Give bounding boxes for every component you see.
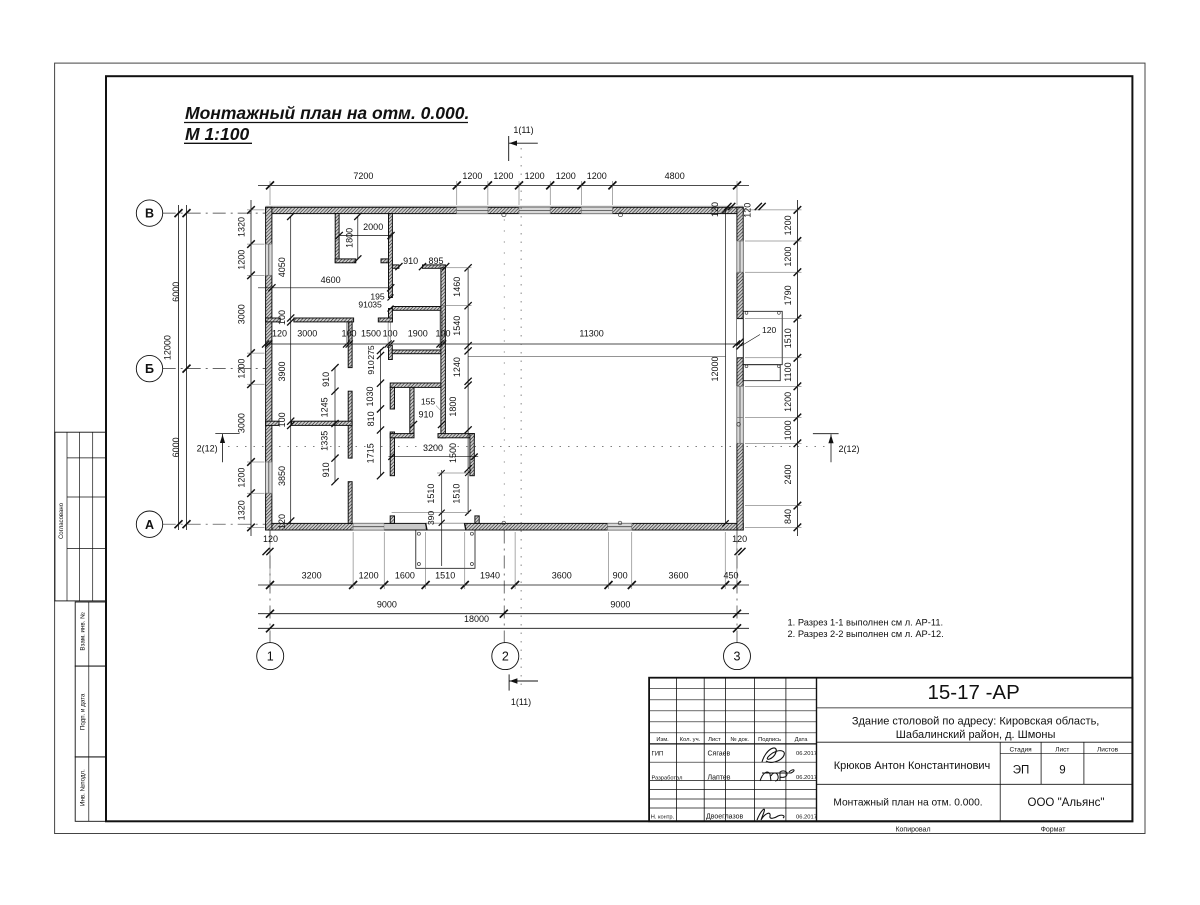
svg-text:12000: 12000: [163, 335, 173, 360]
svg-text:1540: 1540: [452, 316, 462, 336]
svg-text:3200: 3200: [302, 571, 322, 581]
svg-text:1460: 1460: [452, 277, 462, 297]
svg-text:1510: 1510: [435, 571, 455, 581]
svg-text:100: 100: [435, 329, 450, 339]
svg-text:810: 810: [366, 411, 376, 426]
svg-text:3: 3: [734, 650, 741, 664]
svg-text:1100: 1100: [783, 362, 793, 381]
svg-text:100: 100: [277, 310, 287, 325]
svg-text:910: 910: [403, 256, 418, 266]
svg-text:Инв. №подл.: Инв. №подл.: [80, 769, 87, 806]
svg-text:910: 910: [358, 300, 373, 310]
svg-text:2. Разрез 2-2 выполнен см л. А: 2. Разрез 2-2 выполнен см л. АР-12.: [788, 629, 944, 639]
svg-text:1320: 1320: [237, 500, 247, 520]
svg-text:Крюков Антон Константинович: Крюков Антон Константинович: [834, 760, 991, 772]
svg-text:1200: 1200: [556, 171, 576, 181]
svg-text:А: А: [145, 518, 154, 532]
svg-text:11300: 11300: [579, 329, 603, 339]
svg-text:3600: 3600: [552, 571, 572, 581]
svg-text:1200: 1200: [237, 250, 247, 270]
svg-text:3850: 3850: [277, 466, 287, 486]
svg-text:ООО "Альянс": ООО "Альянс": [1028, 797, 1105, 809]
svg-text:1320: 1320: [237, 217, 247, 237]
svg-text:1800: 1800: [345, 228, 355, 248]
svg-text:2(12): 2(12): [197, 443, 218, 453]
svg-text:1200: 1200: [359, 571, 379, 581]
svg-text:1200: 1200: [783, 392, 793, 412]
svg-text:910: 910: [366, 360, 376, 375]
svg-text:15-17 -АР: 15-17 -АР: [927, 681, 1019, 704]
svg-text:№ док.: № док.: [730, 737, 749, 743]
svg-text:100: 100: [383, 329, 398, 339]
svg-text:1200: 1200: [237, 468, 247, 488]
svg-text:1. Разрез 1-1 выполнен см л. А: 1. Разрез 1-1 выполнен см л. АР-11.: [788, 617, 944, 627]
svg-text:4050: 4050: [277, 257, 287, 277]
svg-text:Взам. инв. №: Взам. инв. №: [80, 612, 87, 651]
svg-text:12000: 12000: [710, 356, 720, 381]
svg-text:840: 840: [783, 509, 793, 524]
svg-text:9: 9: [1059, 765, 1065, 777]
svg-text:1940: 1940: [480, 571, 500, 581]
svg-text:Шабалинский район, д. Шмоны: Шабалинский район, д. Шмоны: [896, 729, 1056, 741]
svg-text:1: 1: [267, 650, 274, 664]
svg-text:120: 120: [272, 329, 287, 339]
svg-text:Разработал: Разработал: [652, 776, 683, 782]
svg-text:Лист: Лист: [1055, 747, 1069, 754]
svg-text:06.2017: 06.2017: [796, 751, 817, 757]
svg-text:Н. контр.: Н. контр.: [651, 815, 675, 821]
svg-text:2(12): 2(12): [839, 444, 860, 454]
svg-text:Сягаев: Сягаев: [708, 751, 731, 758]
svg-text:3200: 3200: [423, 443, 443, 453]
svg-text:6000: 6000: [171, 437, 181, 457]
svg-text:Копировал: Копировал: [895, 827, 930, 834]
svg-text:6000: 6000: [171, 282, 181, 302]
svg-text:1510: 1510: [783, 328, 793, 348]
svg-text:ГИП: ГИП: [652, 752, 664, 758]
svg-text:4600: 4600: [321, 275, 341, 285]
svg-text:1200: 1200: [237, 359, 247, 379]
svg-text:1030: 1030: [365, 386, 375, 406]
svg-text:Лаптев: Лаптев: [708, 775, 731, 782]
svg-text:155: 155: [421, 397, 436, 407]
svg-text:Б: Б: [145, 362, 154, 376]
svg-text:06.2017: 06.2017: [796, 815, 817, 821]
svg-text:3000: 3000: [237, 304, 247, 324]
svg-text:Здание столовой по адресу: Кир: Здание столовой по адресу: Кировская обл…: [852, 715, 1100, 727]
svg-text:1(11): 1(11): [511, 697, 531, 707]
svg-text:2: 2: [502, 650, 509, 664]
svg-text:910: 910: [321, 462, 331, 477]
svg-text:В: В: [145, 207, 154, 221]
svg-text:3000: 3000: [237, 413, 247, 433]
svg-text:06.2017: 06.2017: [796, 775, 817, 781]
svg-text:450: 450: [723, 571, 738, 581]
svg-text:М 1:100: М 1:100: [185, 124, 249, 144]
svg-text:Двоеглазов: Двоеглазов: [706, 814, 743, 821]
svg-text:1200: 1200: [525, 171, 545, 181]
svg-text:Согласовано: Согласовано: [59, 502, 65, 539]
svg-text:1000: 1000: [783, 420, 793, 440]
svg-text:1600: 1600: [395, 571, 415, 581]
svg-text:895: 895: [428, 256, 443, 266]
svg-text:120: 120: [732, 534, 747, 544]
svg-text:3000: 3000: [297, 329, 317, 339]
svg-text:Стадия: Стадия: [1010, 747, 1033, 754]
svg-text:Монтажный план на отм. 0.000.: Монтажный план на отм. 0.000.: [833, 798, 982, 809]
svg-text:1790: 1790: [783, 285, 793, 305]
svg-text:35: 35: [372, 300, 382, 310]
svg-text:2000: 2000: [363, 222, 383, 232]
svg-text:1500: 1500: [448, 443, 458, 463]
svg-text:1(11): 1(11): [513, 125, 533, 135]
svg-text:120: 120: [277, 514, 287, 529]
svg-text:2400: 2400: [783, 464, 793, 484]
svg-text:Подпись: Подпись: [758, 737, 781, 743]
svg-text:Подп. и дата: Подп. и дата: [80, 693, 87, 730]
svg-text:1200: 1200: [493, 171, 513, 181]
svg-text:1335: 1335: [320, 431, 330, 451]
svg-text:Кол. уч.: Кол. уч.: [680, 737, 701, 743]
svg-text:3900: 3900: [277, 361, 287, 381]
svg-text:Монтажный план на отм. 0.000.: Монтажный план на отм. 0.000.: [185, 103, 469, 123]
svg-text:120: 120: [710, 202, 720, 217]
svg-text:1200: 1200: [587, 171, 607, 181]
svg-text:900: 900: [613, 571, 628, 581]
svg-text:9000: 9000: [610, 599, 630, 609]
svg-text:1245: 1245: [320, 397, 330, 417]
svg-text:1500: 1500: [361, 329, 381, 339]
svg-text:1800: 1800: [448, 397, 458, 417]
svg-text:18000: 18000: [464, 614, 489, 624]
svg-text:Изм.: Изм.: [656, 737, 669, 743]
svg-text:3600: 3600: [668, 571, 688, 581]
svg-text:910: 910: [321, 372, 331, 387]
svg-text:120: 120: [743, 203, 753, 218]
svg-text:100: 100: [277, 412, 287, 427]
svg-text:ЭП: ЭП: [1013, 765, 1030, 777]
svg-text:Дата: Дата: [795, 737, 809, 743]
svg-text:4800: 4800: [665, 171, 685, 181]
svg-text:Лист: Лист: [708, 737, 721, 743]
svg-text:9000: 9000: [377, 599, 397, 609]
svg-text:910: 910: [418, 410, 433, 420]
svg-text:Формат: Формат: [1041, 827, 1067, 834]
svg-text:1200: 1200: [783, 247, 793, 267]
svg-text:120: 120: [263, 534, 278, 544]
svg-text:1510: 1510: [426, 484, 436, 504]
svg-text:120: 120: [762, 325, 776, 335]
svg-text:1240: 1240: [452, 357, 462, 377]
svg-text:Листов: Листов: [1097, 747, 1119, 754]
svg-text:1200: 1200: [462, 171, 482, 181]
svg-text:1200: 1200: [783, 215, 793, 235]
svg-text:1900: 1900: [408, 329, 428, 339]
svg-text:1510: 1510: [452, 484, 462, 504]
svg-text:275: 275: [366, 345, 376, 360]
svg-text:7200: 7200: [353, 171, 373, 181]
